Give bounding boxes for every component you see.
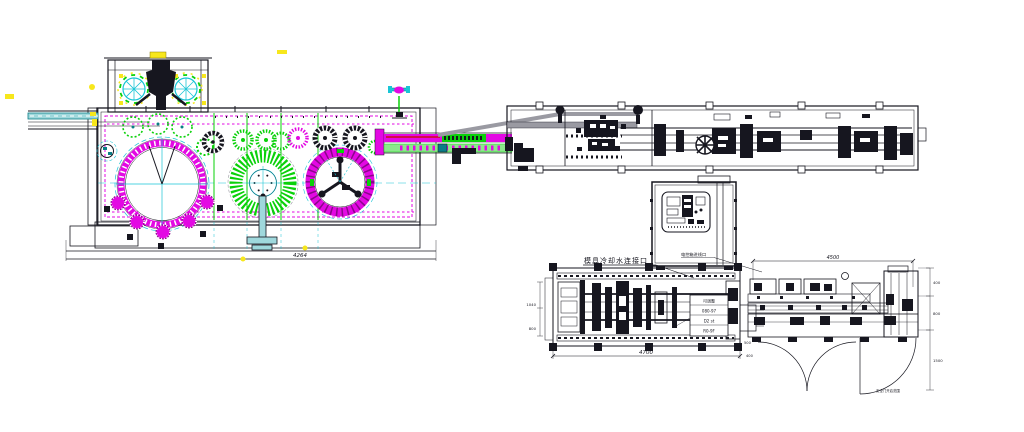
infeed-bay-part xyxy=(633,105,643,115)
rail-section-part xyxy=(718,136,728,140)
operator-panel-part xyxy=(684,199,691,202)
side-body-part xyxy=(810,283,820,291)
clamp-mechanism-part xyxy=(561,288,577,297)
exit-conveyor-part xyxy=(452,154,461,164)
highlight-markers-part xyxy=(241,257,246,262)
clamp-mechanism-part xyxy=(658,300,664,315)
left-dim-b: 800 xyxy=(529,326,537,331)
main-turret-wheel xyxy=(97,114,223,249)
side-gear xyxy=(97,141,117,161)
rail-section xyxy=(620,112,926,160)
side-body-part xyxy=(886,294,894,305)
right-dim-b: 800 xyxy=(933,311,941,316)
side-body-part xyxy=(786,283,794,291)
infeed-bay-part xyxy=(636,115,640,124)
capper-turret-wheel-part xyxy=(319,191,326,198)
spec-row-2: 080-97 xyxy=(702,309,717,314)
highlight-markers-part xyxy=(303,246,308,251)
service-lever-part xyxy=(247,237,277,244)
infeed-bay-part xyxy=(556,106,565,115)
edge-clips-part xyxy=(618,166,625,173)
edge-clips-part xyxy=(876,102,883,109)
side-body-part xyxy=(806,296,809,299)
gripper-gear-cluster-part xyxy=(127,234,133,240)
center-turret-wheel-part xyxy=(258,175,260,177)
capper-turret-wheel-part xyxy=(332,172,341,177)
center-turret-wheel xyxy=(228,148,298,250)
control-cabinet: 电控箱进线口 xyxy=(650,176,762,272)
rail-section-part xyxy=(654,124,666,156)
cabinet-bolts-part xyxy=(650,252,653,255)
infeed-bay-part xyxy=(590,124,596,128)
side-body-part xyxy=(824,337,833,342)
side-body-part xyxy=(842,305,847,310)
left-dim-a: 1040 xyxy=(526,302,536,307)
upper-green-wheels-part xyxy=(157,123,160,126)
side-body xyxy=(748,266,918,342)
clamp-mechanism-part xyxy=(619,296,626,306)
highlight-bar xyxy=(150,52,166,58)
side-body-part xyxy=(754,283,762,291)
clamp-mechanism-part xyxy=(619,312,626,320)
edge-clips-part xyxy=(706,166,713,173)
exit-conveyor-part xyxy=(452,148,476,154)
side-body-part xyxy=(780,296,783,299)
door-note: 安全门开启范围 xyxy=(876,388,900,393)
side-body-part xyxy=(820,316,830,325)
side-body-part xyxy=(830,296,833,299)
rail-section-part xyxy=(800,130,812,140)
center-turret-wheel-part xyxy=(266,189,268,191)
side-body-part xyxy=(860,337,869,342)
service-lever-part xyxy=(259,196,266,238)
guard-door-swings-part xyxy=(860,338,916,394)
side-body-part xyxy=(884,316,896,325)
side-body-part xyxy=(902,299,913,311)
gripper-gear-cluster-part xyxy=(158,243,164,249)
edge-clips-part xyxy=(536,166,543,173)
guard-door-swings-part xyxy=(807,342,856,391)
cabinet-bolts xyxy=(650,199,737,255)
center-turret-wheel-part xyxy=(258,189,260,191)
star-wheel-row-part xyxy=(296,136,300,140)
edge-clips-part xyxy=(798,166,805,173)
clamp-length-dim: 4700 xyxy=(639,350,653,356)
exit-conveyor-part xyxy=(438,144,447,152)
clamp-mechanism-part xyxy=(605,287,612,328)
cabinet-bolts-part xyxy=(734,252,737,255)
filler-enclosure-frame-part xyxy=(420,108,436,225)
clamp-mechanism-part xyxy=(580,280,585,334)
gripper-gear-cluster-part xyxy=(200,231,206,237)
rail-section-part xyxy=(838,126,851,158)
right-dimension-stack: 400 800 1500 xyxy=(918,268,943,390)
infeed-bay-part xyxy=(558,114,562,123)
highlight-markers-part xyxy=(92,119,97,126)
star-wheel-row-part xyxy=(323,136,327,140)
hopper-chute-mechanism-part xyxy=(146,60,176,104)
clamp-mechanism-part xyxy=(561,301,577,313)
roller-corner-markers-part xyxy=(202,101,206,105)
rail-section-part xyxy=(676,130,684,152)
infeed-hopper-assembly xyxy=(104,52,212,112)
rail-section-part xyxy=(714,114,730,120)
infeed-bay-part xyxy=(518,166,528,171)
star-wheel-row-part xyxy=(264,138,268,142)
clamp-mechanism-part xyxy=(728,288,738,301)
edge-clips-part xyxy=(536,102,543,109)
rail-section-part xyxy=(860,138,870,142)
capper-turret-wheel-part xyxy=(337,157,344,164)
spec-row-1: 可调整 xyxy=(703,298,715,304)
cabinet-note: 电控箱进线口 xyxy=(681,251,706,258)
valve-symbol-part xyxy=(388,86,392,93)
side-body-part xyxy=(760,305,765,310)
side-body-part xyxy=(852,296,855,299)
clamp-mechanism-part xyxy=(616,281,629,334)
exit-conveyor-part xyxy=(375,129,384,155)
infeed-bay-part xyxy=(592,142,597,145)
roller-corner-markers-part xyxy=(119,101,123,105)
mold-cooling-note: 模具冷却水连接口 xyxy=(584,256,648,265)
clamp-mechanism-part xyxy=(592,283,601,331)
clamp-mechanism-part xyxy=(633,288,642,327)
edge-clips-part xyxy=(876,166,883,173)
side-width-dim: 4500 xyxy=(827,255,840,261)
operator-panel-part xyxy=(684,205,691,208)
star-wheel-row-part xyxy=(211,140,215,144)
infeed-bay-part xyxy=(610,126,615,129)
gap-dim-a: 500 xyxy=(744,341,752,345)
side-body-part xyxy=(824,284,832,291)
side-gear-part xyxy=(103,147,107,150)
capper-turret-wheel xyxy=(303,145,377,219)
rail-section-part xyxy=(826,113,840,118)
infeed-bay-part xyxy=(600,124,606,128)
star-wheel-row-part xyxy=(353,136,357,140)
clamp-unit-plan-view: 模具冷却水连接口 xyxy=(526,256,764,359)
infeed-bay-part xyxy=(600,115,606,119)
cad-layout-drawing: 4264 xyxy=(0,0,1024,432)
mounting-pads-part xyxy=(734,343,742,351)
valve-symbol-part xyxy=(396,112,403,117)
guard-door-swings-part xyxy=(758,342,807,391)
star-wheel-row-part xyxy=(241,138,245,142)
rail-section-part xyxy=(740,124,753,158)
operator-panel-part xyxy=(700,209,703,212)
operator-panel-part xyxy=(696,197,705,205)
rail-section-part xyxy=(884,126,897,160)
mounting-pads-part xyxy=(698,263,706,271)
side-body-part xyxy=(850,317,862,325)
rail-section-part xyxy=(862,114,870,118)
infeed-bay-part xyxy=(602,143,608,146)
roller-corner-markers-part xyxy=(202,74,206,78)
clamp-mechanism-part xyxy=(561,317,577,326)
spec-label-box: 可调整 080-97 D2 st R0-9F xyxy=(676,295,728,336)
capper-turret-wheel-part xyxy=(337,149,344,153)
highlight-markers-part xyxy=(277,50,287,54)
operator-panel-part xyxy=(695,211,698,214)
side-body-part xyxy=(754,317,765,325)
clamp-left-dimensions: 1040 800 xyxy=(526,282,543,336)
edge-clips-part xyxy=(706,102,713,109)
side-body-part xyxy=(788,305,793,310)
side-body-part xyxy=(898,337,907,342)
service-lever-part xyxy=(252,245,272,250)
gripper-gear-cluster-part xyxy=(217,205,223,211)
guard-door-swings: 安全门开启范围 xyxy=(758,338,916,394)
clamp-mechanism-part xyxy=(672,287,677,328)
operator-panel-part xyxy=(688,219,694,224)
valve-symbol-part xyxy=(394,87,404,94)
spec-row-3: D2 st xyxy=(704,319,715,324)
right-dim-a: 400 xyxy=(933,280,941,285)
gap-dim-b: 400 xyxy=(746,354,754,358)
mounting-pads-part xyxy=(645,263,653,271)
mounting-pads-part xyxy=(698,343,706,351)
gap-dimensions: 500 400 xyxy=(744,341,754,358)
drawing-canvas: 4264 xyxy=(0,0,1024,432)
side-body-part xyxy=(750,279,776,294)
rail-section-part xyxy=(900,133,913,155)
clamp-mechanism-part xyxy=(558,282,580,332)
operator-panel-part xyxy=(667,218,685,223)
clamp-unit-plan-view-part xyxy=(545,278,553,340)
mounting-pads-part xyxy=(734,263,742,271)
rail-section-part xyxy=(712,128,736,154)
rail-section-part xyxy=(718,144,726,147)
highlight-markers-part xyxy=(90,112,96,116)
infeed-bay-part xyxy=(514,143,523,162)
side-body-part xyxy=(790,317,804,325)
upper-green-wheels-part xyxy=(132,126,135,129)
right-dim-c: 1500 xyxy=(933,358,943,363)
cabinet-bolts-part xyxy=(650,199,653,202)
highlight-markers-part xyxy=(89,84,95,90)
side-gear-part xyxy=(101,145,114,158)
cabinet-bolts-part xyxy=(734,227,737,230)
side-body-part xyxy=(788,337,797,342)
operator-panel-part xyxy=(667,209,678,215)
filler-width-dim: 4264 xyxy=(293,253,307,259)
infeed-bay-part xyxy=(577,147,582,151)
edge-clips-part xyxy=(798,102,805,109)
gripper-gear-cluster-part xyxy=(104,206,110,212)
spec-row-4: R0-9F xyxy=(703,329,715,334)
capper-turret-wheel-part xyxy=(367,179,371,186)
mounting-pads-part xyxy=(549,263,557,271)
cabinet-bolts-part xyxy=(734,199,737,202)
center-turret-wheel-part xyxy=(266,175,268,177)
handwheel-icon xyxy=(696,136,714,154)
exit-conveyor-part xyxy=(505,137,513,151)
cabinet-bolts-part xyxy=(650,227,653,230)
operator-panel xyxy=(662,192,710,232)
hopper-chute-mechanism-part xyxy=(156,104,166,110)
side-gear-part xyxy=(108,152,112,155)
side-body-part xyxy=(752,337,761,342)
infeed-bay-part xyxy=(576,128,581,133)
roller-corner-markers-part xyxy=(119,74,123,78)
valve-symbol-part xyxy=(406,86,410,93)
rail-section-part xyxy=(763,138,773,142)
edge-clips-part xyxy=(618,102,625,109)
capper-turret-wheel-part xyxy=(310,179,314,186)
mounting-pads-part xyxy=(594,343,602,351)
filler-machine-plan: 4264 xyxy=(5,50,638,262)
rail-section-part xyxy=(745,115,752,119)
side-body-part xyxy=(757,296,760,299)
highlight-markers-part xyxy=(5,94,14,99)
clamp-mechanism-part xyxy=(728,308,738,324)
side-body-part xyxy=(862,305,867,310)
upper-green-wheels xyxy=(123,114,192,137)
infeed-bay-part xyxy=(614,146,620,151)
valve-symbol xyxy=(388,86,410,118)
capper-turret-wheel-part xyxy=(355,191,362,198)
mounting-pads-part xyxy=(594,263,602,271)
side-body-part xyxy=(842,273,849,280)
operator-panel-part xyxy=(697,220,704,224)
rail-section-part xyxy=(770,112,780,117)
rail-section-part xyxy=(918,128,926,141)
side-body-part xyxy=(816,305,821,310)
capper-turret-wheel-part xyxy=(342,185,350,190)
clamp-mechanism-part xyxy=(646,285,651,330)
operator-panel-part xyxy=(667,197,680,206)
exit-conveyor-part xyxy=(384,134,442,142)
upper-green-wheels-part xyxy=(181,126,184,129)
machine-side-elevation: 4500 xyxy=(744,255,943,394)
